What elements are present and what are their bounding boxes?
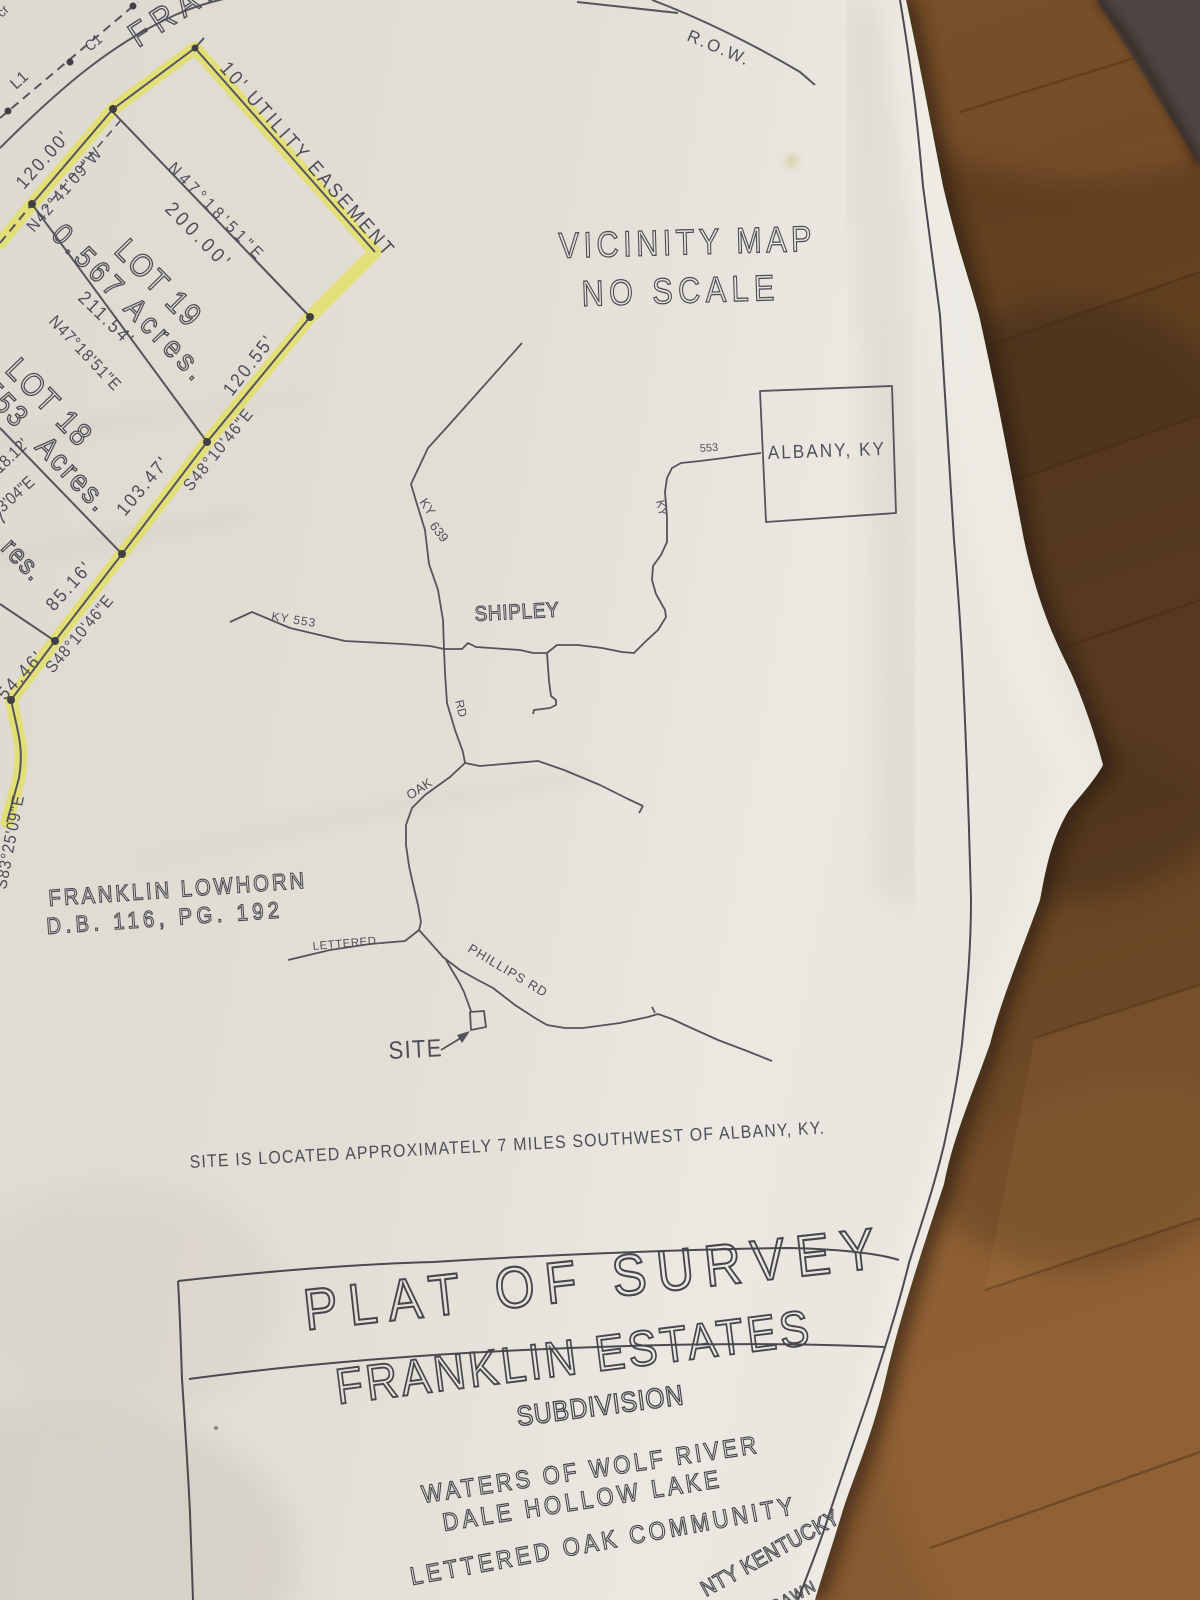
svg-text:SITE: SITE xyxy=(388,1034,444,1064)
svg-text:SHIPLEY: SHIPLEY xyxy=(474,599,560,627)
svg-text:553: 553 xyxy=(699,442,718,455)
svg-text:VICINITY MAP: VICINITY MAP xyxy=(558,220,816,267)
svg-text:ALBANY, KY: ALBANY, KY xyxy=(767,438,886,463)
svg-text:NO SCALE: NO SCALE xyxy=(581,269,780,315)
